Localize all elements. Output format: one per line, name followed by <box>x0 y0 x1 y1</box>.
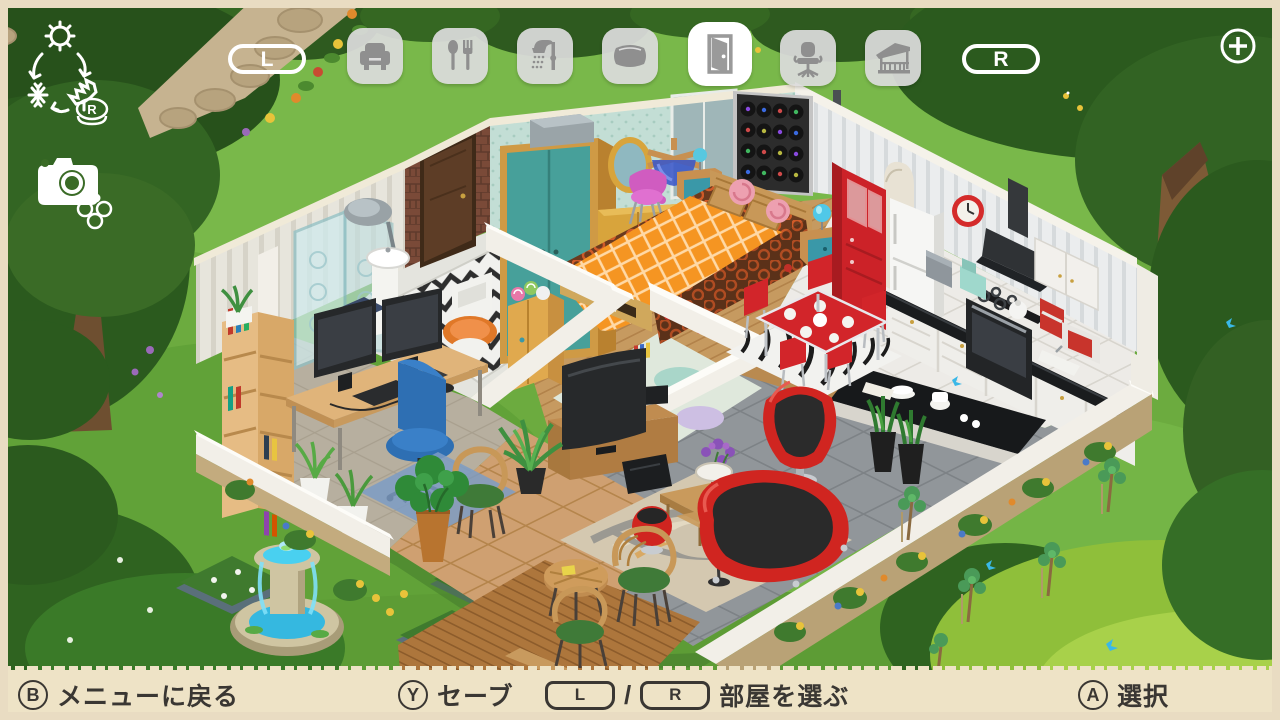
l-button-icon: L <box>545 681 615 710</box>
y-button-icon: Y <box>398 680 428 710</box>
hint-select: A 選択 <box>1078 670 1169 720</box>
desk-chair-icon <box>788 38 828 78</box>
r-button-icon: R <box>640 681 710 710</box>
category-porch-button[interactable] <box>865 30 921 86</box>
season-cycle-widget[interactable]: R <box>22 20 114 125</box>
category-desk-chair-button[interactable] <box>780 30 836 86</box>
armchair-icon <box>355 36 395 76</box>
snowflake-icon <box>29 84 47 106</box>
svg-text:R: R <box>87 102 97 117</box>
shower-icon <box>525 36 565 76</box>
a-button-icon: A <box>1078 680 1108 710</box>
plus-button[interactable] <box>1218 26 1258 66</box>
hint-save: Y セーブ <box>398 670 514 720</box>
garden-house-scene: Welcome <box>0 0 1280 720</box>
camera-button[interactable] <box>28 150 148 260</box>
porch-icon <box>873 38 913 78</box>
slash-separator: / <box>624 680 631 711</box>
plus-icon <box>1218 26 1258 66</box>
category-armchair-button[interactable] <box>347 28 403 84</box>
pillow-icon <box>610 36 650 76</box>
category-cutlery-button[interactable] <box>432 28 488 84</box>
game-screen: Welcome <box>0 0 1280 720</box>
hint-back-label: メニューに戻る <box>57 677 239 713</box>
bottom-hint-bar: B メニューに戻る Y セーブ L / R 部屋を選ぶ A 選択 <box>0 670 1280 720</box>
hint-back-to-menu: B メニューに戻る <box>18 670 239 720</box>
hint-select-label: 選択 <box>1117 677 1169 713</box>
b-button-icon: B <box>18 680 48 710</box>
stick-press-icon: R <box>68 96 116 130</box>
camera-icon <box>38 158 98 205</box>
category-door-button[interactable] <box>688 22 752 86</box>
sun-icon <box>46 22 74 50</box>
cutlery-icon <box>440 36 480 76</box>
hint-save-label: セーブ <box>437 677 514 713</box>
door-icon <box>696 30 744 78</box>
category-pillow-button[interactable] <box>602 28 658 84</box>
hint-choose-room-label: 部屋を選ぶ <box>719 677 849 713</box>
wall-clock <box>952 195 984 227</box>
category-shower-button[interactable] <box>517 28 573 84</box>
l-shoulder-button[interactable]: L <box>228 44 306 74</box>
hint-choose-room: L / R 部屋を選ぶ <box>545 670 849 720</box>
r-shoulder-button[interactable]: R <box>962 44 1040 74</box>
